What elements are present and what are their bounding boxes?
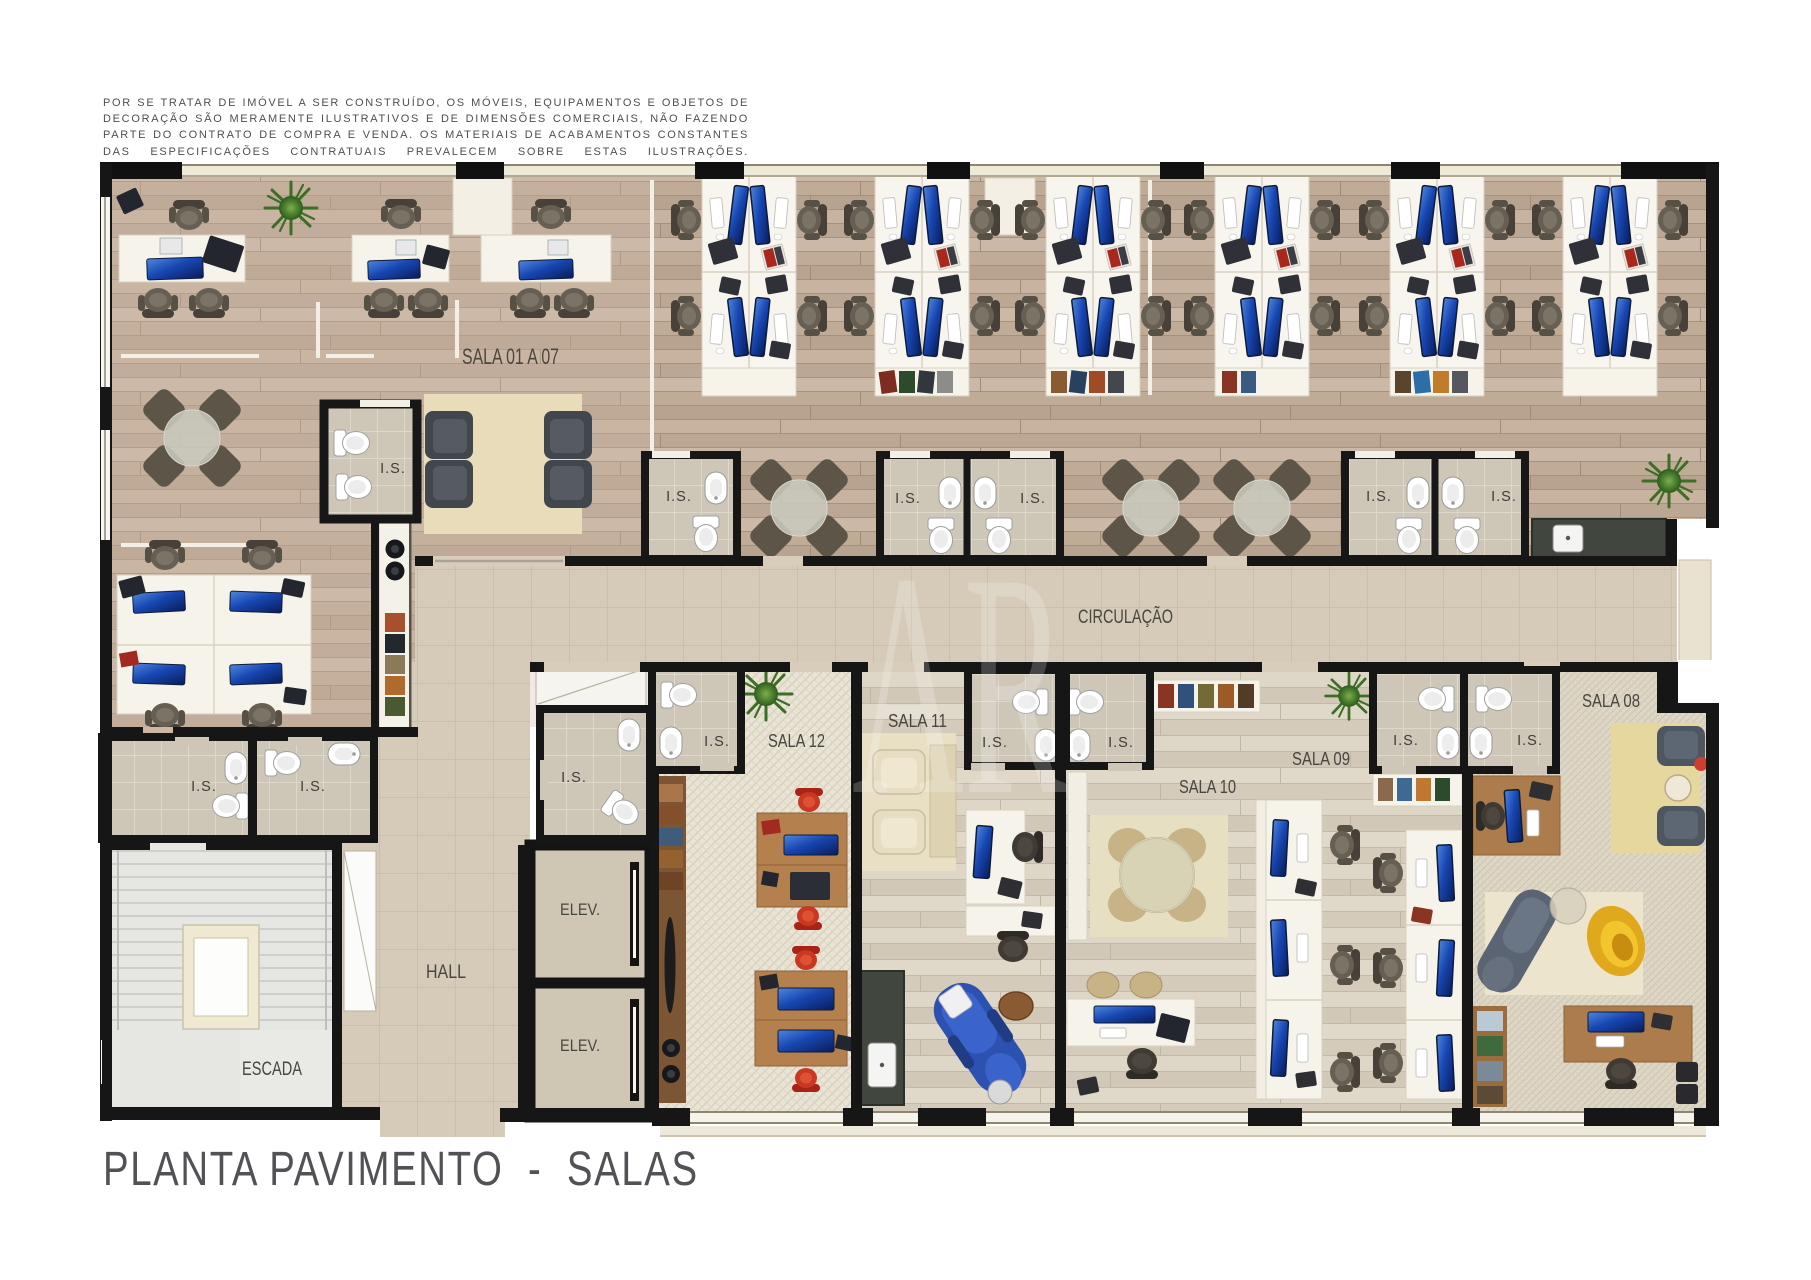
- svg-text:I.S.: I.S.: [1020, 491, 1046, 507]
- svg-text:I.S.: I.S.: [666, 489, 692, 505]
- svg-text:I.S.: I.S.: [1366, 489, 1392, 505]
- svg-text:I.S.: I.S.: [1393, 733, 1419, 749]
- svg-text:ELEV.: ELEV.: [560, 900, 600, 919]
- svg-text:SALA 01 A 07: SALA 01 A 07: [462, 344, 559, 369]
- svg-text:I.S.: I.S.: [1517, 733, 1543, 749]
- svg-text:SALA 10: SALA 10: [1179, 777, 1236, 797]
- svg-text:SALA 08: SALA 08: [1582, 691, 1640, 711]
- svg-text:I.S.: I.S.: [1108, 735, 1134, 751]
- svg-text:I.S.: I.S.: [895, 491, 921, 507]
- svg-text:CIRCULAÇÃO: CIRCULAÇÃO: [1078, 606, 1173, 628]
- svg-text:SALA 12: SALA 12: [768, 731, 825, 751]
- svg-text:ELEV.: ELEV.: [560, 1036, 600, 1055]
- svg-text:I.S.: I.S.: [561, 770, 587, 786]
- svg-text:SALA 09: SALA 09: [1292, 749, 1350, 769]
- svg-text:ESCADA: ESCADA: [242, 1059, 302, 1080]
- svg-text:AR: AR: [852, 508, 1068, 862]
- svg-text:I.S.: I.S.: [191, 779, 217, 795]
- svg-text:I.S.: I.S.: [704, 734, 730, 750]
- svg-text:HALL: HALL: [426, 962, 466, 983]
- svg-text:SALA 11: SALA 11: [888, 711, 947, 731]
- svg-text:I.S.: I.S.: [380, 461, 406, 477]
- svg-text:I.S.: I.S.: [1491, 489, 1517, 505]
- svg-text:I.S.: I.S.: [300, 779, 326, 795]
- svg-text:I.S.: I.S.: [982, 735, 1008, 751]
